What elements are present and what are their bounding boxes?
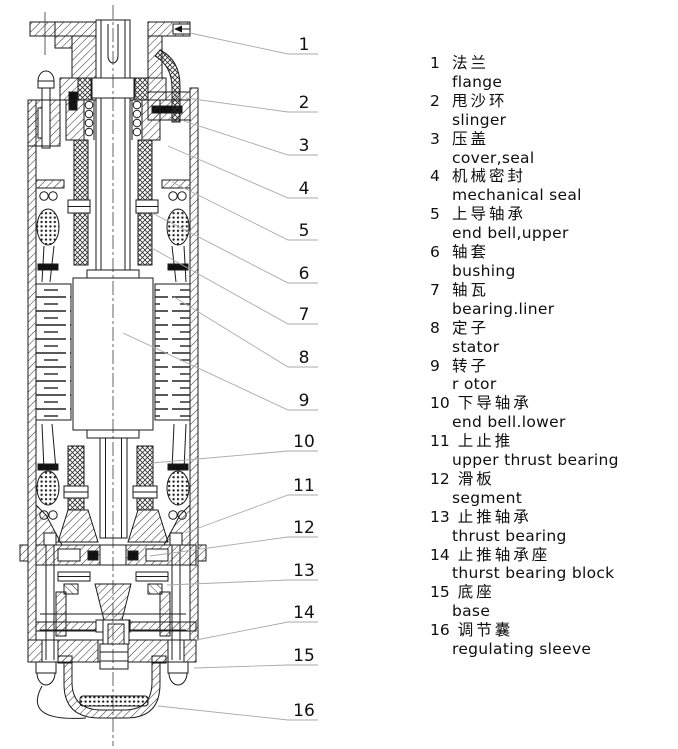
callout-number: 7: [299, 305, 310, 325]
part-number: 11: [430, 432, 450, 451]
callout-number: 11: [293, 476, 315, 496]
part-name-en: bearing.liner: [430, 300, 676, 319]
part-name-en: bushing: [430, 262, 676, 281]
part-number: 6: [430, 243, 444, 262]
part-item: 9转子 r otor: [430, 357, 676, 395]
part-number: 4: [430, 167, 444, 186]
part-item: 15底座 base: [430, 583, 676, 621]
part-number: 15: [430, 583, 450, 602]
part-number: 2: [430, 92, 444, 111]
part-name-zh: 轴套: [452, 243, 489, 262]
part-name-en: r otor: [430, 375, 676, 394]
part-number: 3: [430, 130, 444, 149]
part-item: 6轴套 bushing: [430, 243, 676, 281]
part-item: 14止推轴承座 thurst bearing block: [430, 546, 676, 584]
part-name-zh: 定子: [452, 319, 489, 338]
part-name-zh: 底座: [458, 583, 495, 602]
callout-number: 15: [293, 646, 315, 666]
part-name-en: upper thrust bearing: [430, 451, 676, 470]
callout-number: 14: [293, 603, 315, 623]
callout-number: 13: [293, 561, 315, 581]
part-name-en: mechanical seal: [430, 186, 676, 205]
part-number: 14: [430, 546, 450, 565]
callout-number: 1: [299, 35, 310, 55]
part-name-en: segment: [430, 489, 676, 508]
part-item: 5上导轴承 end bell,upper: [430, 205, 676, 243]
figure: 1 2 3 4 5 6 7 8 9 10 11 12 13 14 15 16 1…: [0, 0, 678, 749]
part-item: 8定子 stator: [430, 319, 676, 357]
parts-list: 1法兰 flange 2甩沙环 slinger 3压盖 cover,seal 4…: [430, 54, 676, 659]
motor-cross-section-diagram: 1 2 3 4 5 6 7 8 9 10 11 12 13 14 15 16: [0, 0, 340, 749]
part-name-zh: 调节囊: [458, 621, 514, 640]
callout-number: 16: [293, 701, 315, 721]
part-item: 3压盖 cover,seal: [430, 130, 676, 168]
part-item: 16调节囊 regulating sleeve: [430, 621, 676, 659]
callout-number: 4: [299, 179, 310, 199]
part-item: 1法兰 flange: [430, 54, 676, 92]
part-name-zh: 止推轴承座: [458, 546, 551, 565]
part-item: 2甩沙环 slinger: [430, 92, 676, 130]
part-name-en: slinger: [430, 111, 676, 130]
callout-number: 2: [299, 93, 310, 113]
part-name-zh: 机械密封: [452, 167, 526, 186]
callout-number: 3: [299, 136, 310, 156]
part-item: 10下导轴承 end bell.lower: [430, 394, 676, 432]
part-name-zh: 压盖: [452, 130, 489, 149]
part-name-zh: 甩沙环: [452, 92, 508, 111]
callout-number: 5: [299, 221, 310, 241]
part-name-zh: 下导轴承: [458, 394, 532, 413]
part-name-en: end bell.lower: [430, 413, 676, 432]
part-name-zh: 上导轴承: [452, 205, 526, 224]
part-number: 10: [430, 394, 450, 413]
part-item: 12滑板 segment: [430, 470, 676, 508]
callout-number: 9: [299, 391, 310, 411]
callout-number: 10: [293, 432, 315, 452]
part-number: 8: [430, 319, 444, 338]
part-name-en: end bell,upper: [430, 224, 676, 243]
part-number: 12: [430, 470, 450, 489]
part-name-en: thrust bearing: [430, 527, 676, 546]
part-item: 7轴瓦 bearing.liner: [430, 281, 676, 319]
part-name-en: base: [430, 602, 676, 621]
part-item: 13止推轴承 thrust bearing: [430, 508, 676, 546]
part-item: 11上止推 upper thrust bearing: [430, 432, 676, 470]
part-name-zh: 转子: [452, 357, 489, 376]
callout-number: 12: [293, 518, 315, 538]
part-number: 1: [430, 54, 444, 73]
part-name-zh: 法兰: [452, 54, 489, 73]
part-name-zh: 滑板: [458, 470, 495, 489]
callout-number: 8: [299, 348, 310, 368]
part-name-en: thurst bearing block: [430, 564, 676, 583]
part-name-en: cover,seal: [430, 149, 676, 168]
part-number: 16: [430, 621, 450, 640]
part-name-zh: 止推轴承: [458, 508, 532, 527]
part-number: 9: [430, 357, 444, 376]
part-name-zh: 轴瓦: [452, 281, 489, 300]
part-name-zh: 上止推: [458, 432, 514, 451]
part-name-en: regulating sleeve: [430, 640, 676, 659]
part-number: 7: [430, 281, 444, 300]
part-number: 13: [430, 508, 450, 527]
callout-numbers: 1 2 3 4 5 6 7 8 9 10 11 12 13 14 15 16: [293, 35, 315, 721]
part-name-en: flange: [430, 73, 676, 92]
callout-number: 6: [299, 264, 310, 284]
part-item: 4机械密封 mechanical seal: [430, 167, 676, 205]
part-name-en: stator: [430, 338, 676, 357]
part-number: 5: [430, 205, 444, 224]
